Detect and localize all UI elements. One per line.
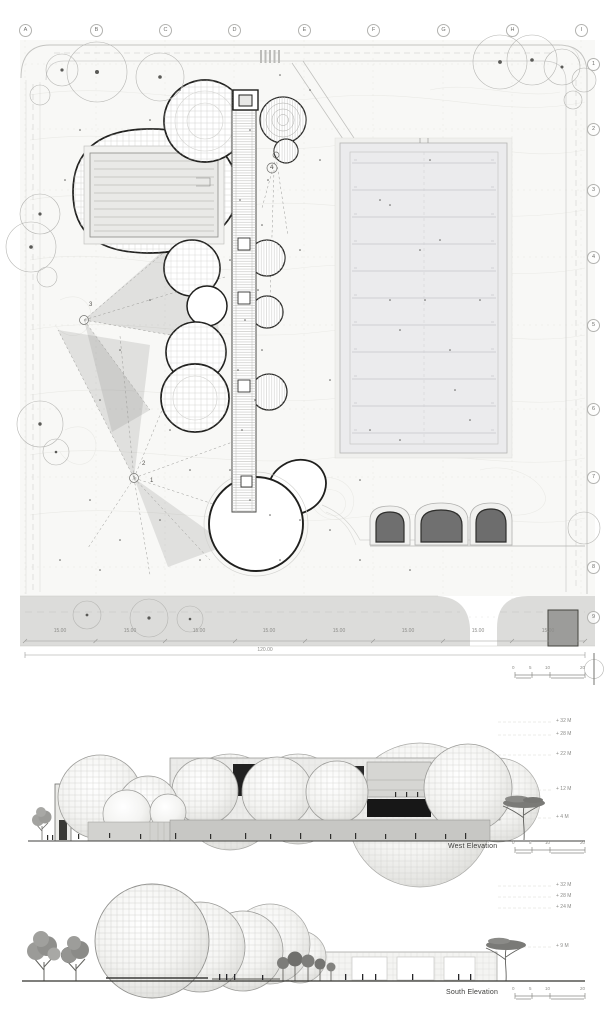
south-elevation-drawing <box>22 884 585 999</box>
grid-row-8: 8 <box>587 561 600 574</box>
scale-tick: 5 <box>529 841 532 846</box>
west-dome-blobs <box>161 240 229 432</box>
west-level-32m: + 32 M <box>556 719 571 724</box>
grid-column-C: C <box>159 24 172 37</box>
boardwalk-spine <box>232 90 258 512</box>
scale-tick: 5 <box>529 987 532 992</box>
grid-column-H: H <box>506 24 519 37</box>
bay-dimension: 15.00 <box>188 629 210 634</box>
scale-tick: 20 <box>580 987 585 992</box>
grid-row-3: 3 <box>587 184 600 197</box>
bay-dimension: 15.00 <box>119 629 141 634</box>
south-trees-left <box>27 931 89 981</box>
boulevard <box>20 596 595 646</box>
west-level-12m: + 12 M <box>556 787 571 792</box>
south-level-28m: + 28 M <box>556 894 571 899</box>
bay-dimension: 15.00 <box>328 629 350 634</box>
south-level-24m: + 24 M <box>556 905 571 910</box>
scale-tick: 0 <box>512 987 515 992</box>
grid-row-4: 4 <box>587 251 600 264</box>
grid-row-2: 2 <box>587 123 600 136</box>
west-level-4m: + 4 M <box>556 815 569 820</box>
west-plinth <box>88 820 490 841</box>
viewpoint-label-3: 3 <box>89 302 92 308</box>
grid-row-5: 5 <box>587 319 600 332</box>
west-tree-left <box>32 807 52 840</box>
north-symbol <box>585 653 604 685</box>
swimming-pool <box>90 153 218 237</box>
west-scale-bar <box>515 847 585 853</box>
south-level-lines <box>498 886 553 947</box>
site-plan-drawing <box>6 35 604 685</box>
architectural-sheet: A B C D E F G H I 1 2 3 4 5 6 7 8 9 1 2 … <box>0 0 614 1024</box>
sports-field <box>335 138 512 458</box>
plan-scale-bar <box>515 672 585 678</box>
grid-column-G: G <box>437 24 450 37</box>
grid-row-9: 9 <box>587 611 600 624</box>
west-elevation-drawing <box>28 722 585 887</box>
scale-tick: 20 <box>580 841 585 846</box>
scale-tick: 0 <box>512 666 515 671</box>
drawing-graphics <box>0 0 614 1024</box>
south-elevation-title: South Elevation <box>446 989 498 996</box>
grid-row-1: 1 <box>587 58 600 71</box>
south-level-9m: + 9 M <box>556 944 569 949</box>
bay-dimension: 15.00 <box>49 629 71 634</box>
south-level-32m: + 32 M <box>556 883 571 888</box>
south-scale-bar <box>515 993 585 999</box>
viewpoint-label-4: 4 <box>270 165 273 171</box>
west-elevation-title: West Elevation <box>448 843 497 850</box>
scale-tick: 20 <box>580 666 585 671</box>
west-level-28m: + 28 M <box>556 732 571 737</box>
grid-row-6: 6 <box>587 403 600 416</box>
grid-column-I: I <box>575 24 588 37</box>
grid-column-A: A <box>19 24 32 37</box>
grid-row-7: 7 <box>587 471 600 484</box>
scale-tick: 5 <box>529 666 532 671</box>
west-level-22m: + 22 M <box>556 752 571 757</box>
scale-tick: 10 <box>545 987 550 992</box>
bay-dimension: 15.00 <box>397 629 419 634</box>
bay-dimension: 15.00 <box>467 629 489 634</box>
grid-column-B: B <box>90 24 103 37</box>
grid-column-F: F <box>367 24 380 37</box>
grid-column-E: E <box>298 24 311 37</box>
scale-tick: 10 <box>545 666 550 671</box>
scale-tick: 0 <box>512 841 515 846</box>
grid-column-D: D <box>228 24 241 37</box>
bay-dimension: 15.00 <box>537 629 559 634</box>
scale-tick: 10 <box>545 841 550 846</box>
bay-dimension: 15.00 <box>258 629 280 634</box>
viewpoint-label-2: 2 <box>142 461 145 467</box>
total-dimension: 120.00 <box>254 648 276 653</box>
viewpoint-label-1: 1 <box>150 478 153 484</box>
